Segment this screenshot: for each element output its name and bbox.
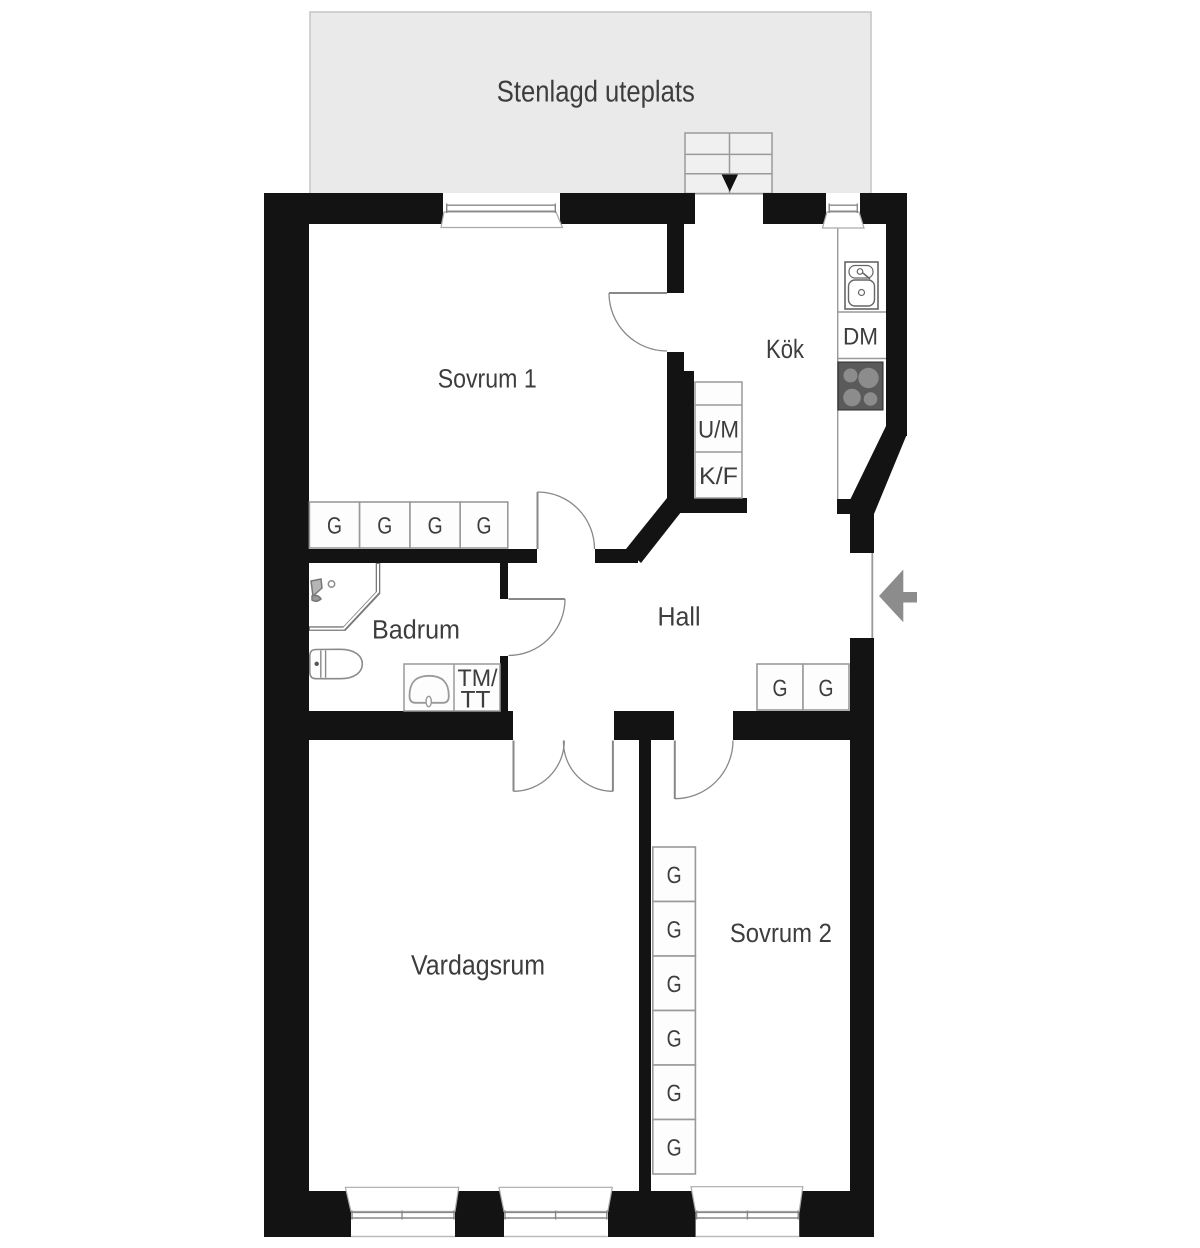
svg-text:Badrum: Badrum <box>372 615 460 645</box>
svg-text:G: G <box>773 675 788 701</box>
svg-text:DM: DM <box>843 324 878 351</box>
svg-text:Sovrum 1: Sovrum 1 <box>438 364 537 394</box>
svg-text:G: G <box>667 1135 682 1161</box>
svg-text:Sovrum 2: Sovrum 2 <box>730 918 832 948</box>
svg-text:Kök: Kök <box>766 334 805 364</box>
svg-text:Hall: Hall <box>658 601 701 631</box>
svg-text:G: G <box>667 1080 682 1106</box>
svg-text:G: G <box>819 675 834 701</box>
svg-text:TT: TT <box>461 687 491 714</box>
svg-text:G: G <box>428 513 443 539</box>
svg-text:G: G <box>377 513 392 539</box>
svg-text:Vardagsrum: Vardagsrum <box>411 950 545 981</box>
svg-text:K/F: K/F <box>699 463 738 490</box>
svg-text:G: G <box>667 917 682 943</box>
svg-text:G: G <box>667 971 682 997</box>
svg-text:G: G <box>667 862 682 888</box>
svg-text:G: G <box>327 513 342 539</box>
svg-text:G: G <box>477 513 492 539</box>
svg-text:Stenlagd uteplats: Stenlagd uteplats <box>497 76 695 109</box>
svg-text:G: G <box>667 1026 682 1052</box>
svg-text:U/M: U/M <box>698 417 739 444</box>
